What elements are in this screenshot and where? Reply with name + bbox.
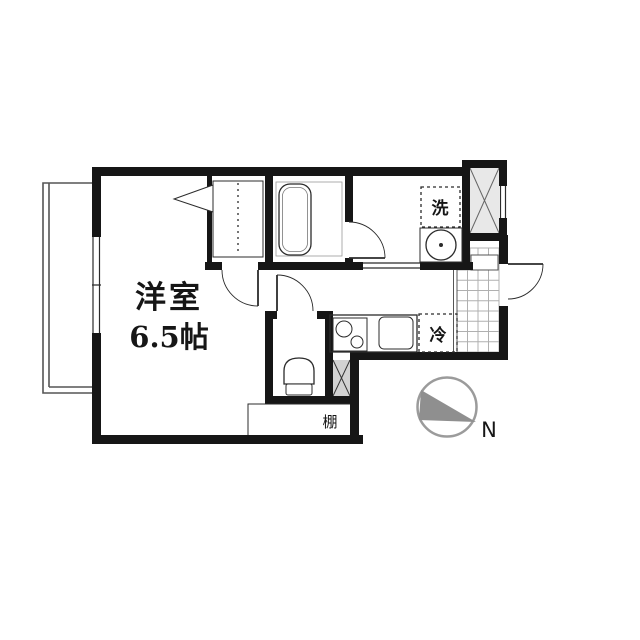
room-door [222, 270, 258, 306]
entrance-step-line [454, 270, 458, 352]
front-door [508, 264, 543, 299]
wall-segment [205, 262, 222, 270]
wall-segment [462, 160, 470, 241]
stove-burner-icon [336, 321, 352, 337]
compass-icon: N [418, 378, 497, 443]
fridge-label: 冷 [430, 325, 447, 346]
floor-plan: N 洋室 6.5帖 洗 冷 棚 [0, 0, 640, 640]
bathroom-door [349, 222, 385, 258]
wall-segment [499, 160, 507, 186]
bathtub [279, 184, 311, 255]
bathtub-inner [283, 188, 308, 252]
balcony [43, 183, 92, 393]
basin-drain-icon [439, 243, 443, 247]
balcony-railing [43, 183, 92, 393]
wall-segment [92, 167, 466, 176]
closet-door-arrow-icon [174, 185, 213, 212]
wall-segment [499, 306, 508, 360]
wall-segment [92, 333, 101, 444]
kitchen-counter [330, 315, 417, 352]
wall-segment [92, 167, 101, 237]
shoe-cabinet [471, 255, 498, 270]
room-name-label: 洋室 [135, 280, 203, 316]
washer-label: 洗 [432, 198, 449, 219]
wall-segment [462, 241, 470, 270]
wall-segment [258, 262, 363, 270]
wall-segment [499, 218, 507, 241]
north-label: N [481, 418, 497, 442]
wall-segment [265, 176, 273, 262]
window-left [92, 237, 101, 333]
shelf-label: 棚 [322, 413, 337, 431]
toilet-bowl [284, 358, 314, 384]
compass-needle [419, 390, 476, 422]
wall-segment [350, 352, 508, 360]
wall-segment [265, 311, 273, 404]
toilet-door [277, 275, 313, 311]
wall-segment [325, 311, 333, 404]
wall-segment [92, 435, 363, 444]
toilet-base [286, 384, 312, 395]
window-shaft [501, 186, 506, 218]
wall-segment [345, 176, 353, 222]
floorplan-page: N 洋室 6.5帖 洗 冷 棚 [0, 0, 640, 640]
wall-segment [265, 396, 358, 404]
room-size-label: 6.5帖 [129, 320, 208, 354]
washroom-threshold [363, 263, 420, 268]
stove-burner-icon [351, 336, 363, 348]
bathroom-floor [276, 182, 342, 256]
kitchen-sink [379, 317, 413, 349]
